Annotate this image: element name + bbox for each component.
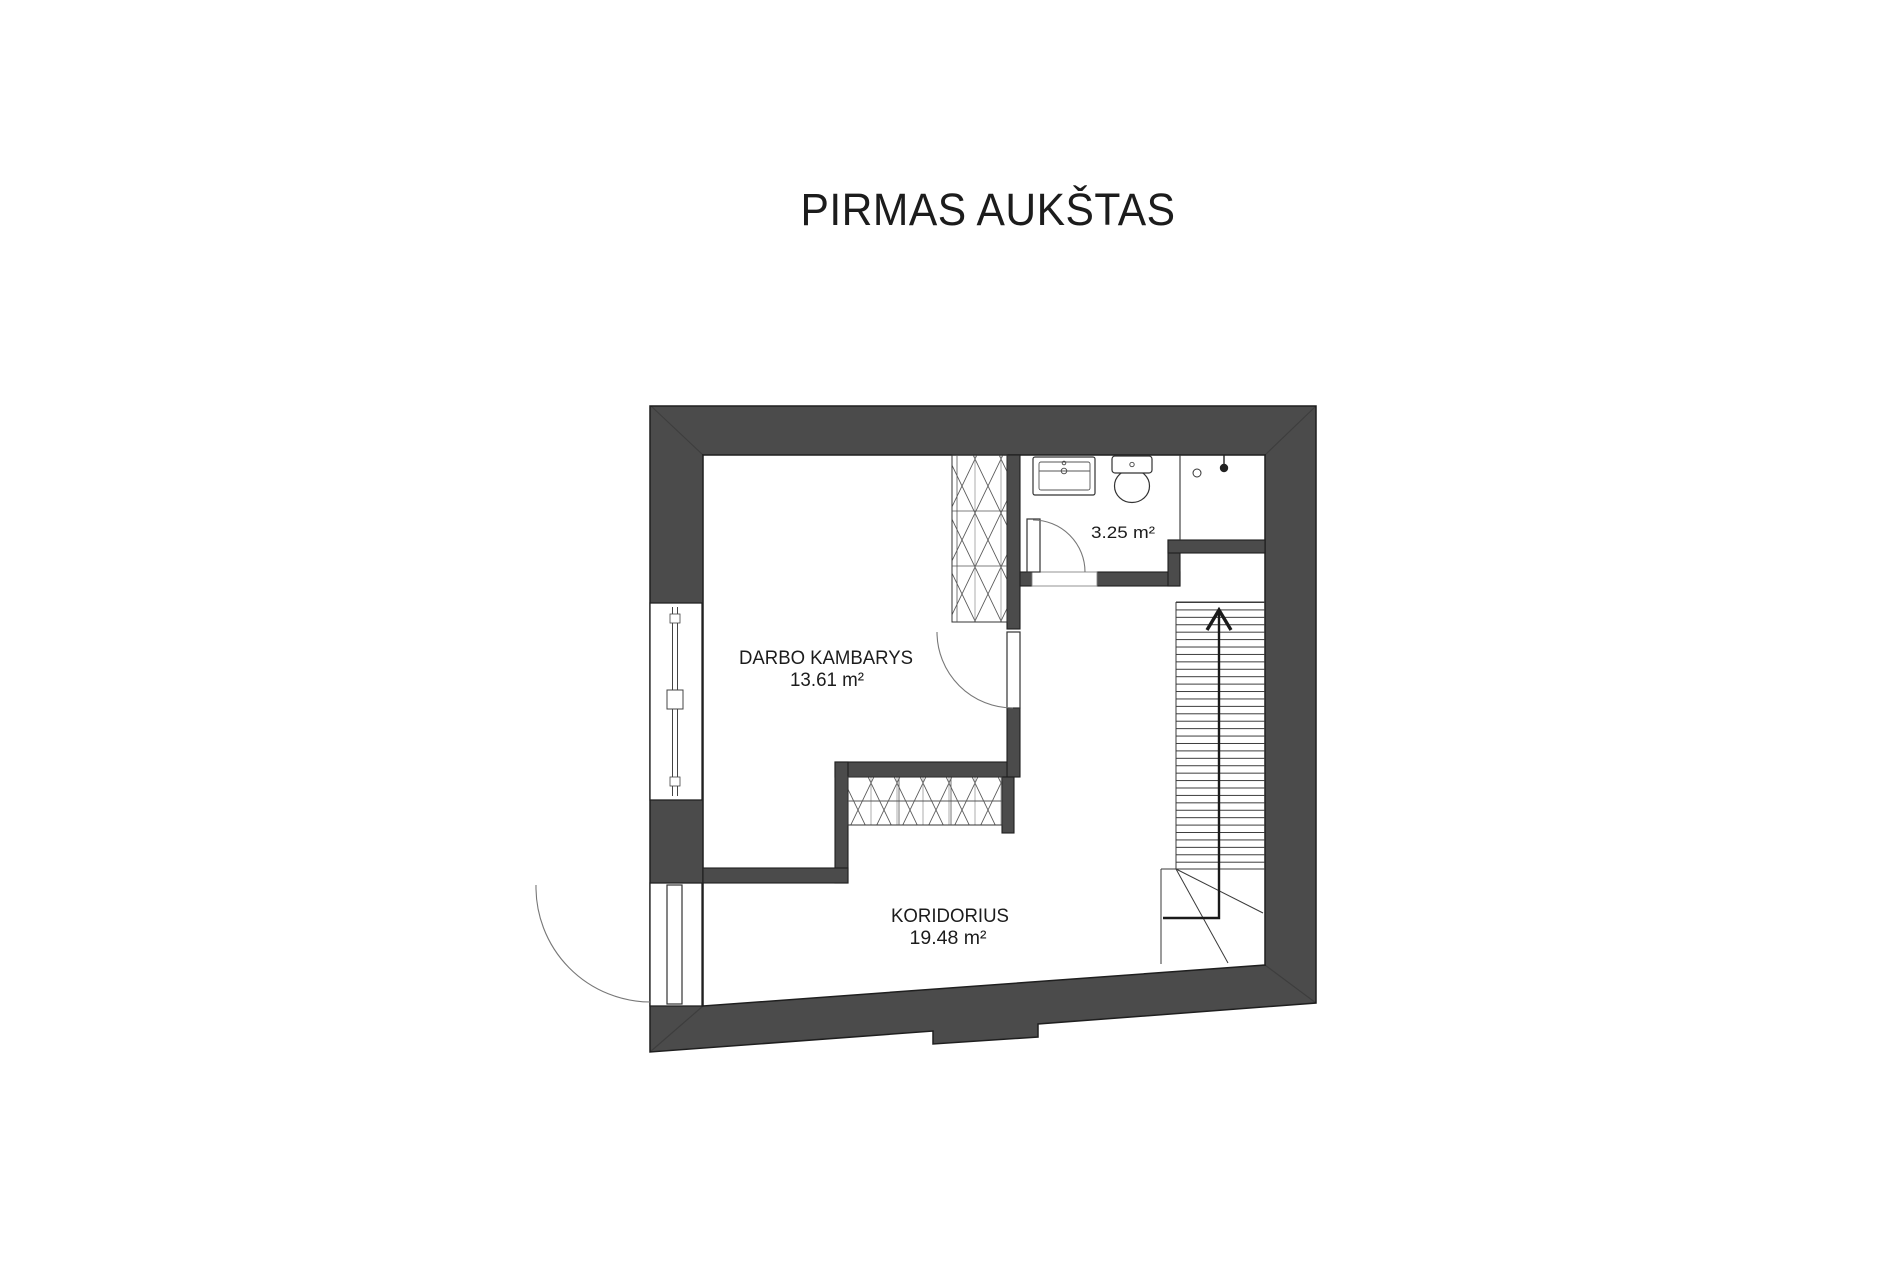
toilet-icon (1112, 456, 1152, 503)
corridor-label: KORIDORIUS (891, 906, 1009, 927)
wall-wardrobe-end-cap (1002, 777, 1014, 833)
stair-treads (1176, 602, 1265, 869)
workroom-door-leaf (1007, 632, 1020, 708)
wall-workroom-step (835, 762, 848, 883)
workroom-label: DARBO KAMBARYS (739, 648, 913, 669)
page-title: PIRMAS AUKŠTAS (801, 184, 1176, 235)
wall-bathroom-west-upper (1007, 455, 1020, 629)
wardrobe-horizontal (848, 777, 1002, 825)
wall-workroom-south-east (835, 762, 1007, 777)
bathroom-door-opening (1032, 572, 1097, 586)
corridor-area: 19.48 m² (910, 928, 987, 949)
bathroom-area: 3.25 m² (1091, 523, 1155, 542)
bathroom-door-leaf (1027, 519, 1040, 572)
wall-bathroom-west-lower (1007, 708, 1020, 777)
wall-bathroom-south-east (1168, 540, 1265, 553)
wall-bathroom-south-stub (1020, 572, 1032, 586)
wall-workroom-south-west (703, 868, 848, 883)
workroom-area: 13.61 m² (790, 670, 864, 691)
floor-plan: PIRMAS AUKŠTAS DARBO KAMBARYS 13.61 m² K… (0, 0, 1900, 1267)
sink-icon (1033, 457, 1095, 495)
window-mullion (667, 690, 683, 709)
entrance-door-leaf (667, 885, 682, 1004)
wardrobe-vertical (952, 455, 1007, 622)
floor-plan-sheet: PIRMAS AUKŠTAS DARBO KAMBARYS 13.61 m² K… (0, 0, 1900, 1267)
window (650, 603, 702, 800)
